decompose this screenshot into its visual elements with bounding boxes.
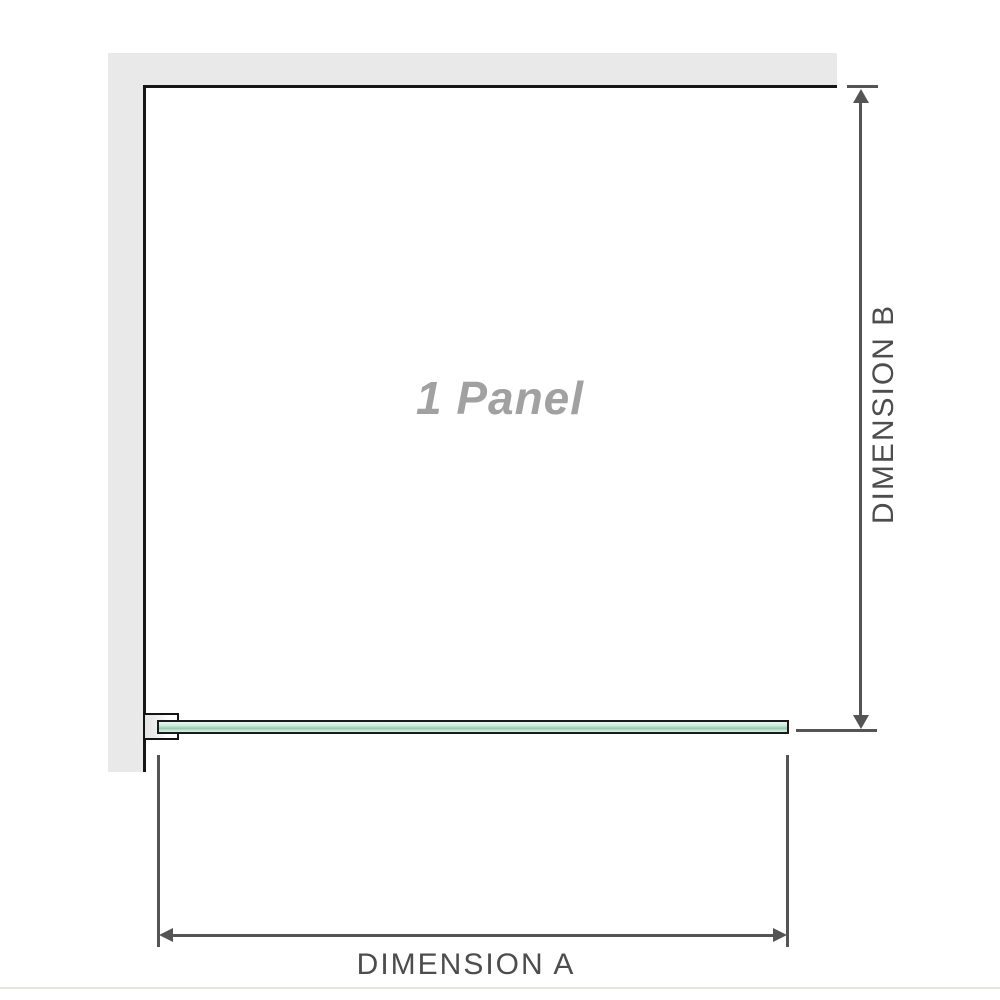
- panel-count-label: 1 Panel: [416, 371, 584, 425]
- dimension-b-tick-bottom: [796, 729, 877, 732]
- wall-inner-edge-top: [143, 85, 837, 88]
- dimension-b-arrowhead-up-icon: [853, 89, 869, 103]
- glass-panel: [157, 720, 789, 734]
- dimension-a-arrowhead-right-icon: [773, 928, 787, 942]
- dimension-a-arrowhead-left-icon: [159, 928, 173, 942]
- dimension-b-tick-top: [847, 85, 878, 88]
- dimension-b-line: [859, 99, 862, 719]
- dimension-b-arrowhead-down-icon: [853, 715, 869, 729]
- image-baseline-divider: [0, 987, 1000, 989]
- dimension-a-extension-right: [786, 755, 789, 947]
- wall-left: [108, 53, 143, 772]
- dimension-b-label: DIMENSION B: [867, 304, 901, 524]
- dimension-a-extension-left: [157, 755, 160, 947]
- wall-inner-edge-left: [143, 85, 146, 772]
- diagram-canvas: 1 Panel DIMENSION B DIMENSION A: [0, 0, 1000, 1000]
- wall-top: [108, 53, 837, 87]
- dimension-a-line: [166, 934, 782, 937]
- dimension-a-label: DIMENSION A: [357, 948, 576, 982]
